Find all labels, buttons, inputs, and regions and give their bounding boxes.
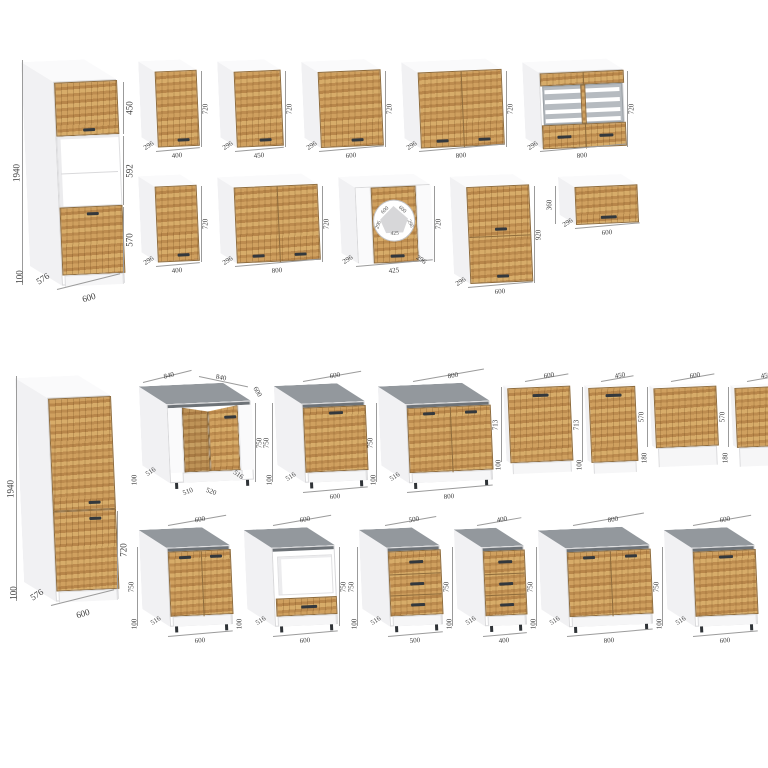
- dim-line: [452, 547, 453, 626]
- cabinet-base-corner-840: 750100840840600516516510520: [130, 372, 264, 504]
- dim-height-left: 750: [528, 582, 535, 593]
- dim-plinth: 100: [237, 619, 244, 630]
- handle-icon: [179, 556, 191, 560]
- dim-height-left: 570: [720, 412, 727, 423]
- cabinet-box: [454, 527, 527, 634]
- dim-top-small: 600: [251, 386, 262, 399]
- cabinet-wall-600: 600720296: [299, 56, 394, 163]
- cabinet-wall-400-b: 400720296: [136, 171, 210, 278]
- handle-icon: [329, 411, 343, 415]
- door-front: [182, 406, 211, 472]
- panel-front: [734, 386, 768, 448]
- handle-icon: [583, 556, 595, 560]
- front-face: [272, 545, 338, 627]
- cabinet-base-drawers-400: 400400750516100: [445, 516, 527, 648]
- plinth: [512, 461, 571, 475]
- dim-height-left: 750: [349, 582, 356, 593]
- counter-edge: [273, 546, 334, 552]
- handle-icon: [625, 554, 637, 558]
- dim-plinth: 100: [657, 619, 664, 630]
- cabinet-wall-450: 450720296: [215, 56, 294, 163]
- dim-plinth: 100: [371, 475, 378, 486]
- door-front: [54, 80, 119, 137]
- dim-depth: 296: [406, 140, 419, 152]
- dim-width-bottom: 800: [443, 493, 454, 501]
- bottom-section: 6001940576100720750100840840600516516510…: [0, 372, 768, 648]
- cabinet-box: [217, 59, 284, 149]
- door-divider: [610, 551, 614, 616]
- leg-icon: [175, 483, 178, 489]
- leg-icon: [490, 626, 493, 632]
- bottom-section-rows: 7501008408406005165165105206006007505161…: [130, 372, 768, 648]
- handle-icon: [224, 415, 236, 419]
- front-face: [387, 545, 443, 626]
- side-wing: [168, 408, 185, 474]
- cabinet-wall-corner-600: 600600296296425425720296296: [336, 171, 443, 278]
- front-face: [418, 69, 505, 149]
- dim-width-bottom: 600: [75, 608, 90, 620]
- dim-width-top: 450: [760, 372, 768, 381]
- plan-dim-front: 425: [390, 232, 398, 238]
- dim-plinth: 100: [16, 270, 25, 284]
- handle-icon: [87, 212, 99, 216]
- panel-front: [507, 386, 573, 464]
- dim-plinth: 100: [267, 475, 274, 486]
- dim-depth: 296: [222, 140, 235, 152]
- shelf-line: [61, 171, 118, 174]
- panel-front: [653, 386, 719, 449]
- door-front: [208, 405, 241, 471]
- cabinet-box: [217, 173, 321, 264]
- leg-icon: [175, 626, 178, 632]
- panel-front: [588, 386, 638, 463]
- plinth: [278, 614, 337, 627]
- dim-width-bottom: 400: [498, 637, 509, 645]
- handle-icon: [210, 554, 222, 558]
- dim-width-bottom: 450: [253, 152, 264, 160]
- dim-height-left: 750: [654, 582, 661, 593]
- handle-icon: [295, 252, 307, 256]
- dim-plinth: 180: [642, 453, 649, 464]
- dim-width-bottom: 425: [388, 267, 399, 275]
- dim-plinth: 100: [577, 460, 584, 471]
- dim-depth-left: 296: [342, 254, 355, 266]
- front-face: [406, 401, 493, 484]
- handle-icon: [719, 555, 733, 559]
- cabinet-base-800: 800800750516100: [369, 372, 493, 504]
- cabinet-base-sink-600: 600600750516100: [130, 516, 233, 648]
- plinth: [698, 614, 757, 627]
- cabinet-box: [15, 374, 119, 603]
- leg-icon: [519, 625, 522, 631]
- front-face: [167, 545, 233, 627]
- side-wing: [416, 185, 434, 262]
- dim-depth: 296: [306, 140, 319, 152]
- handle-icon: [499, 582, 513, 586]
- dim-width-bottom: 600: [194, 637, 205, 645]
- plan-dim-side_right: 296: [405, 219, 413, 229]
- dim-height-left: 570: [639, 412, 646, 423]
- handle-icon: [465, 410, 477, 414]
- dim-width-top: 600: [543, 372, 555, 381]
- drawer-divider: [486, 593, 526, 596]
- dim-width-top: 800: [607, 516, 619, 525]
- dim-depth: 296: [222, 255, 235, 267]
- drawer-divider: [485, 573, 525, 576]
- dim-line: [16, 376, 17, 601]
- leg-icon: [574, 627, 577, 633]
- dim-width-bottom: 600: [494, 288, 505, 296]
- door-front: [303, 405, 369, 473]
- handle-icon: [83, 128, 95, 132]
- handle-icon: [411, 603, 425, 607]
- cabinet-tall-pantry-600: 6001940576100720: [0, 372, 126, 619]
- cabinet-wall-400: 400720296: [136, 56, 210, 163]
- cabinet-base-drawers-500: 500500750516100: [350, 516, 443, 648]
- dim-plinth: 100: [132, 619, 139, 630]
- dim-width-top: 600: [299, 516, 311, 525]
- dim-line: [662, 547, 663, 626]
- dim-height-left: 750: [264, 438, 271, 449]
- front-face: [466, 184, 533, 284]
- handle-icon: [301, 605, 317, 609]
- handle-icon: [557, 135, 571, 139]
- handle-icon: [423, 412, 435, 416]
- dim-height-left: 1940: [13, 164, 22, 182]
- cabinet-dw-front-600-713: 600713100: [494, 372, 574, 481]
- top-section-row-2: 4007202968007202966006002962964254257202…: [136, 171, 640, 299]
- dim-width-bottom: 500: [409, 637, 420, 645]
- cabinet-base-oven-600: 600600750516100: [235, 516, 348, 648]
- dim-height-left: 713: [493, 420, 500, 431]
- dim-width-bottom: 800: [271, 267, 282, 275]
- door-divider: [583, 73, 585, 86]
- dim-plinth: 100: [447, 619, 454, 630]
- dim-top-left: 840: [163, 371, 175, 380]
- front-face: [539, 69, 626, 149]
- drawer-divider: [390, 572, 441, 575]
- top-section-rows: 4007202964507202966007202968007202968007…: [136, 56, 640, 299]
- cabinet-dw-front-450-713: 450713100: [575, 372, 639, 481]
- cabinet-wall-glass-800: 800720296: [520, 56, 636, 163]
- front-face: [53, 79, 125, 286]
- dim-width-top: 800: [447, 372, 459, 381]
- handle-icon: [500, 603, 514, 607]
- dim-width-bottom: 400: [171, 152, 182, 160]
- plinth: [739, 446, 768, 467]
- plinth: [173, 614, 232, 627]
- top-section-row-1: 4007202964507202966007202968007202968007…: [136, 56, 640, 163]
- dim-line: [536, 547, 537, 626]
- door-divider: [450, 407, 454, 472]
- top-section: 6001940576100450592570400720296450720296…: [6, 56, 640, 303]
- front-face: [692, 545, 758, 627]
- leg-icon: [310, 482, 313, 488]
- door-front: [693, 549, 759, 617]
- cabinet-box: [503, 383, 574, 475]
- dim-plinth: 100: [496, 460, 503, 471]
- front-face: [566, 545, 653, 628]
- dim-segment: 450: [126, 101, 135, 115]
- leg-icon: [395, 626, 398, 632]
- handle-icon: [479, 137, 491, 141]
- dim-line: [501, 387, 502, 462]
- bottom-section-row-2: 6006007505161006006007505161005005007505…: [130, 516, 768, 648]
- dim-height-right: 750: [341, 582, 348, 593]
- dim-top-right: 840: [215, 373, 227, 382]
- door-front: [60, 205, 126, 276]
- cabinet-tall-oven-housing-600: 6001940576100450592570: [6, 56, 132, 303]
- door-divider: [469, 234, 530, 238]
- cabinet-box: [522, 58, 626, 149]
- door-front: [567, 549, 654, 618]
- dim-width-top: 400: [496, 516, 508, 525]
- dim-height-left: 750: [444, 582, 451, 593]
- dim-segment: 592: [126, 164, 135, 178]
- dim-depth: 296: [562, 217, 575, 229]
- dim-height-right: 720: [629, 104, 636, 115]
- handle-icon: [601, 215, 617, 219]
- dim-height-left: 360: [547, 200, 554, 211]
- front-face: [318, 69, 384, 148]
- dim-front-right: 520: [205, 487, 217, 497]
- dim-height-right: 720: [508, 104, 515, 115]
- cabinet-box: 600600296296425: [338, 173, 433, 264]
- dim-front-left: 510: [182, 487, 194, 497]
- handle-icon: [409, 560, 423, 564]
- door-divider: [585, 124, 587, 148]
- dim-width-bottom: 800: [455, 152, 466, 160]
- handle-icon: [253, 254, 265, 258]
- dim-line: [22, 60, 23, 285]
- cabinet-box: [301, 58, 384, 148]
- dim-line: [582, 387, 583, 462]
- cabinet-base-800-b: 800800750516100: [529, 516, 653, 648]
- dim-width-bottom: 600: [719, 637, 730, 645]
- plinth: [593, 461, 636, 474]
- leg-icon: [360, 480, 363, 486]
- leg-icon: [330, 624, 333, 630]
- dim-height-right: 720: [324, 219, 331, 230]
- handle-icon: [532, 394, 548, 398]
- dim-line: [137, 547, 138, 626]
- cabinet-wall-flap-600: 600360296: [548, 171, 640, 240]
- cabinet-wall-800: 800720296: [399, 56, 515, 163]
- handle-icon: [178, 138, 190, 142]
- oven-niche: [277, 554, 334, 595]
- dim-depth: 296: [455, 276, 468, 288]
- door-divider: [201, 551, 205, 616]
- door-front: [388, 549, 444, 616]
- leg-icon: [750, 624, 753, 630]
- drawer-divider: [391, 593, 442, 596]
- cabinet-box: [730, 383, 768, 467]
- dim-height-right: 720: [287, 104, 294, 115]
- bottom-section-row-1: 7501008408406005165165105206006007505161…: [130, 372, 768, 504]
- dim-plinth: 100: [352, 619, 359, 630]
- front-face: [234, 184, 321, 264]
- cabinet-box: [401, 58, 505, 149]
- dim-line: [728, 387, 729, 447]
- door-divider: [461, 72, 465, 148]
- front-face: [47, 395, 119, 602]
- dim-height-right: 720: [203, 219, 210, 230]
- handle-icon: [260, 138, 272, 142]
- handle-icon: [497, 274, 509, 278]
- cabinet-box: [450, 173, 534, 284]
- handle-icon: [89, 517, 101, 521]
- dim-line: [357, 547, 358, 626]
- cabinet-box: [138, 59, 200, 148]
- front-face: 600600296296425: [355, 184, 433, 263]
- handle-icon: [605, 394, 621, 398]
- dim-width-bottom: 400: [171, 267, 182, 275]
- door-front: [483, 549, 528, 616]
- dim-width-top: 600: [194, 516, 206, 525]
- dim-width-bottom: 600: [345, 152, 356, 160]
- dim-width-top: 600: [719, 516, 731, 525]
- cabinet-dw-front-600-570: 600570180: [640, 372, 720, 474]
- dim-width-top: 600: [329, 372, 341, 381]
- dim-plinth: 100: [531, 619, 538, 630]
- leg-icon: [280, 626, 283, 632]
- front-face: [155, 70, 200, 148]
- side-wing: [238, 405, 255, 471]
- cabinet-wall-stacked-600: 600920296: [448, 171, 543, 299]
- dim-width-bottom: 600: [329, 493, 340, 501]
- open-niche: [56, 134, 122, 208]
- cabinet-wall-800-b: 800720296: [215, 171, 331, 278]
- door-front: [53, 509, 119, 592]
- cabinet-box: [138, 174, 200, 263]
- dim-depth: 296: [143, 140, 156, 152]
- plinth: [658, 446, 718, 468]
- door-front: [168, 549, 234, 617]
- cabinet-box: [584, 383, 639, 474]
- front-face: [234, 70, 284, 148]
- dim-height-left: 750: [129, 582, 136, 593]
- cabinet-box: [21, 58, 125, 287]
- dim-plinth: 100: [132, 475, 139, 486]
- dim-depth: 296: [143, 255, 156, 267]
- front-face: [482, 546, 527, 627]
- leg-icon: [700, 626, 703, 632]
- kitchen-modules-catalog: 6001940576100450592570400720296450720296…: [0, 0, 768, 768]
- leg-icon: [246, 480, 249, 486]
- dim-width-bottom: 600: [601, 229, 612, 237]
- handle-icon: [410, 582, 424, 586]
- handle-icon: [599, 133, 613, 137]
- dim-height-right: 720: [203, 104, 210, 115]
- cabinet-box: [649, 383, 720, 468]
- dim-height-right: 720: [436, 219, 443, 230]
- handle-icon: [437, 139, 449, 143]
- door-divider: [277, 187, 281, 263]
- plinth: [308, 470, 367, 483]
- dim-segment: 570: [126, 233, 135, 247]
- dim-plinth: 180: [723, 453, 730, 464]
- dim-height-right: 720: [387, 104, 394, 115]
- handle-icon: [498, 560, 512, 564]
- dim-height-left: 750: [368, 438, 375, 449]
- front-face: [302, 401, 368, 483]
- handle-icon: [495, 227, 507, 231]
- handle-icon: [178, 253, 190, 257]
- leg-icon: [414, 483, 417, 489]
- dim-segment: 720: [120, 543, 129, 557]
- door-front: [407, 405, 494, 474]
- dim-width-bottom: 600: [81, 292, 96, 304]
- cabinet-base-600: 600600750516100: [265, 372, 368, 504]
- leg-icon: [435, 624, 438, 630]
- dim-height-left: 713: [574, 420, 581, 431]
- dim-depth: 296: [527, 140, 540, 152]
- dim-height-right: 920: [536, 230, 543, 241]
- dim-width-bottom: 600: [299, 637, 310, 645]
- dim-width-top: 450: [614, 372, 626, 381]
- dim-width-top: 500: [408, 516, 420, 525]
- leg-icon: [225, 624, 228, 630]
- dim-width-bottom: 800: [576, 152, 587, 160]
- dim-line: [272, 403, 273, 482]
- handle-icon: [89, 501, 101, 505]
- front-face: [155, 185, 200, 263]
- front-face: [574, 184, 639, 225]
- dim-line: [555, 186, 556, 224]
- dim-width-top: 600: [689, 372, 701, 381]
- dim-plinth: 100: [10, 586, 19, 600]
- handle-icon: [352, 138, 364, 142]
- dim-height-left: 1940: [7, 480, 16, 498]
- cabinet-dw-front-450-570: 450570180: [721, 372, 768, 474]
- dim-line: [376, 403, 377, 482]
- handle-icon: [391, 254, 405, 258]
- door-front: [48, 396, 116, 512]
- plan-dim-side_left: 296: [376, 220, 384, 230]
- dim-line: [647, 387, 648, 447]
- dim-width-bottom: 800: [603, 637, 614, 645]
- cabinet-base-600-b: 600600750516100: [655, 516, 758, 648]
